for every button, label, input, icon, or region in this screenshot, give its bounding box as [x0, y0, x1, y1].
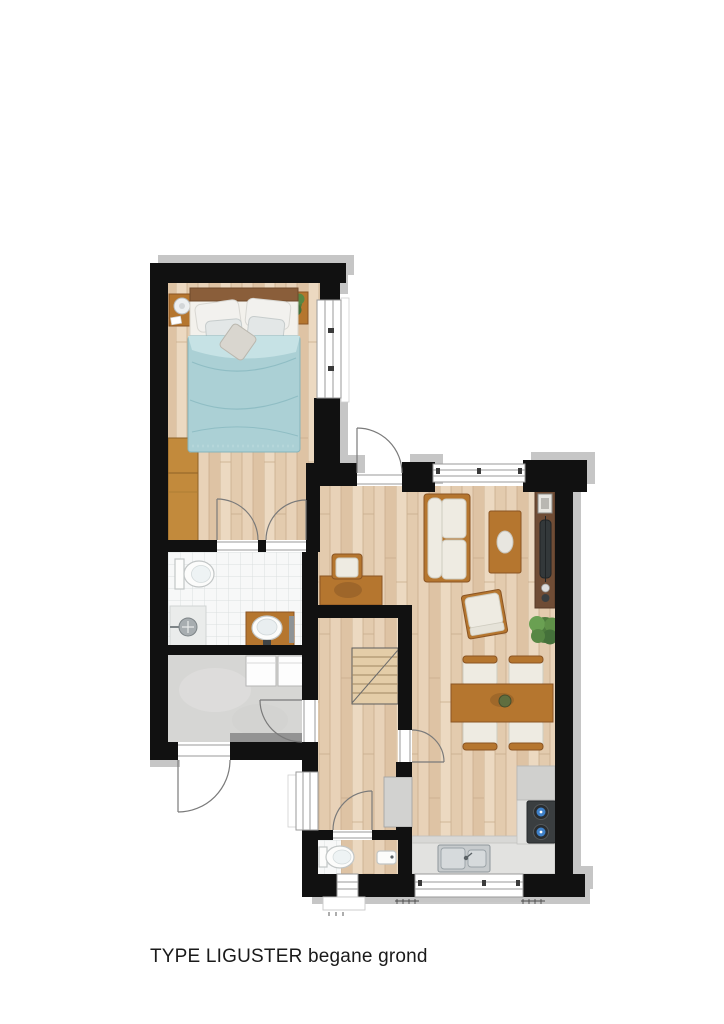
cooktop	[527, 801, 556, 843]
bathroom-toilet	[175, 559, 214, 589]
floorplan-page: TYPE LIGUSTER begane grond	[0, 0, 724, 1024]
living-plant	[529, 616, 560, 645]
floor-plan	[0, 0, 724, 1024]
understairs-closet	[384, 777, 412, 827]
headboard	[190, 288, 298, 301]
sofa	[424, 494, 470, 582]
back-door	[178, 742, 230, 812]
bedroom-window	[317, 298, 349, 402]
coffee-table	[489, 511, 521, 573]
washer	[246, 656, 276, 686]
plan-caption: TYPE LIGUSTER begane grond	[150, 946, 428, 968]
hall-left-window	[288, 772, 318, 830]
double-bed	[188, 288, 300, 452]
desk-chair	[332, 554, 362, 579]
storage-door-header	[230, 733, 310, 742]
wardrobe	[168, 438, 198, 542]
kitchen-sink	[438, 845, 490, 872]
shower	[170, 606, 206, 647]
dining-chair	[463, 720, 497, 750]
washbasin-vanity	[246, 612, 294, 649]
staircase	[352, 648, 398, 704]
speaker	[542, 584, 550, 592]
tv-cabinet	[535, 490, 555, 608]
dining-chair	[463, 656, 497, 686]
dining-chair	[509, 720, 543, 750]
desk	[320, 576, 382, 605]
speaker	[542, 594, 550, 602]
living-top-window	[433, 464, 525, 482]
centerpiece-plant	[499, 695, 511, 707]
armchair	[461, 589, 508, 639]
dining-chair	[509, 656, 543, 686]
kitchen-appliance-block	[517, 766, 555, 800]
